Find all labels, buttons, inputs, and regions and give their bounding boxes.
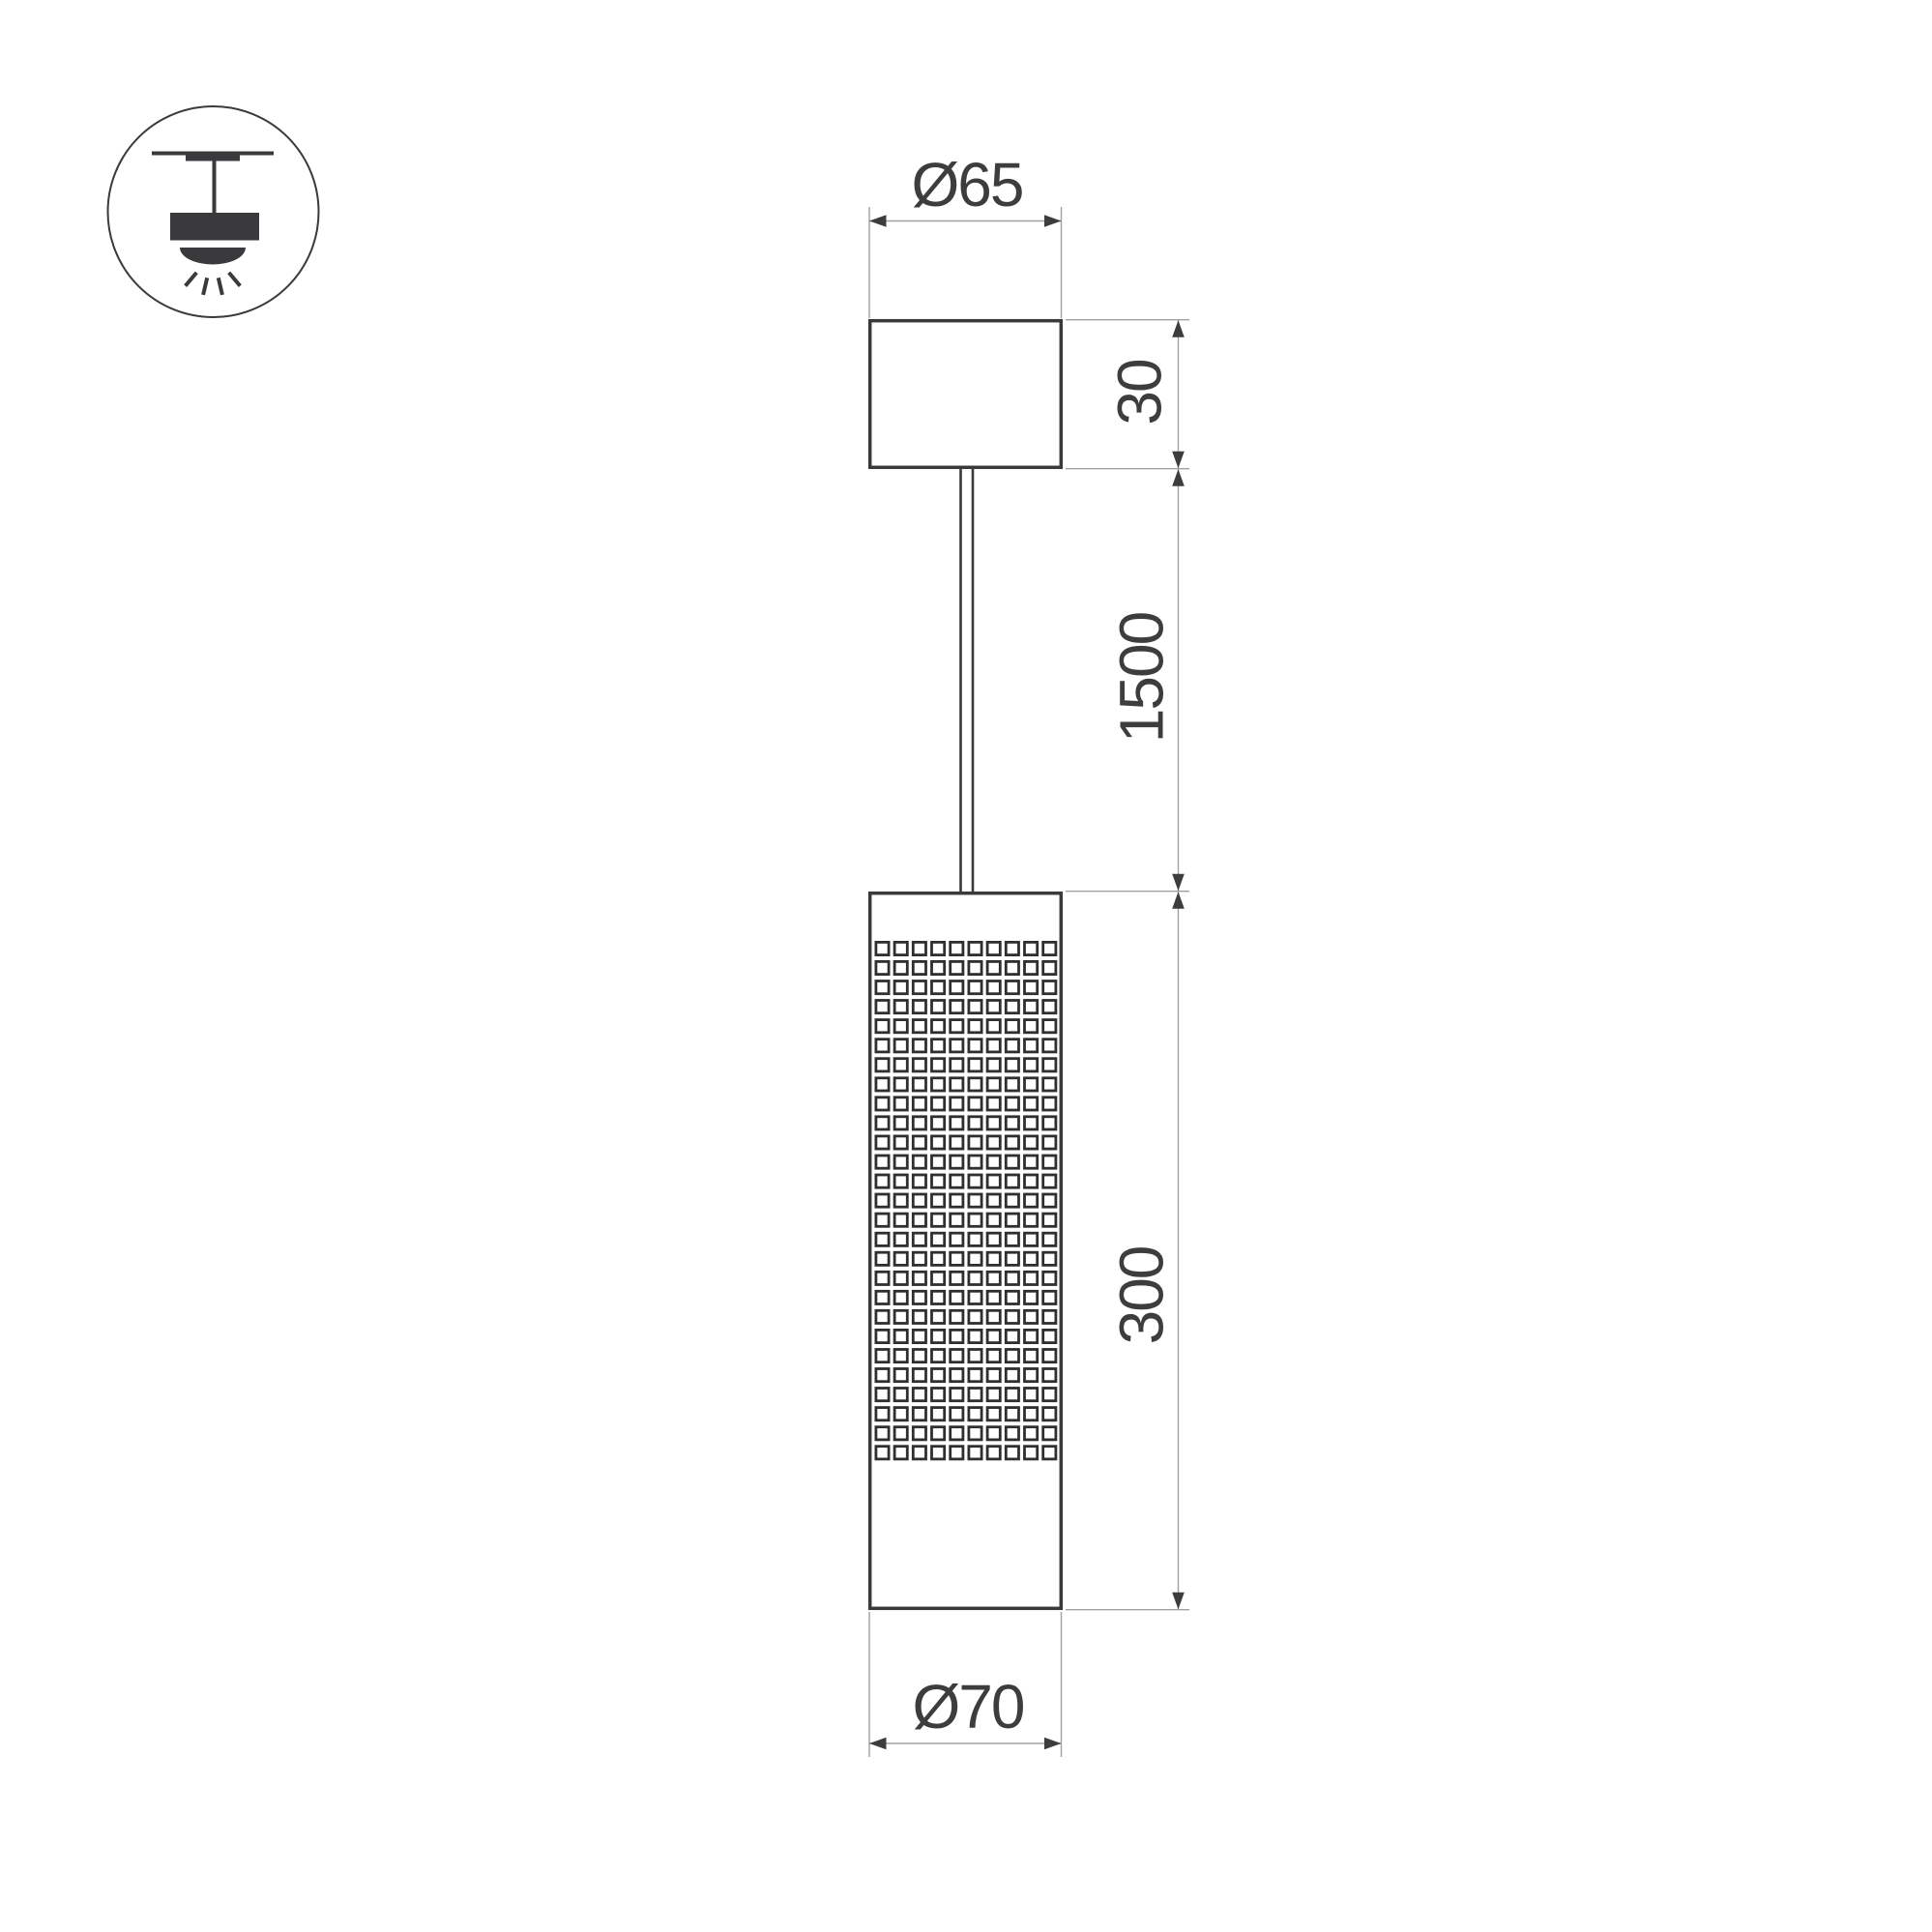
mesh-cell	[894, 1350, 907, 1362]
mesh-cell	[1006, 1330, 1018, 1342]
mesh-cell	[894, 942, 907, 954]
mesh-cell	[951, 1233, 963, 1245]
mesh-cell	[876, 1001, 889, 1013]
mesh-cell	[1025, 1214, 1038, 1226]
mesh-cell	[894, 1291, 907, 1303]
mesh-cell	[932, 981, 945, 994]
mesh-cell	[1025, 1194, 1038, 1207]
mesh-cell	[987, 1156, 1000, 1168]
mesh-cell	[969, 1389, 981, 1401]
mesh-cell	[1043, 1389, 1056, 1401]
mesh-cell	[932, 1272, 945, 1284]
mesh-cell	[1006, 1001, 1018, 1013]
mesh-cell	[951, 1039, 963, 1052]
mesh-cell	[876, 1310, 889, 1323]
mesh-cell	[969, 1310, 981, 1323]
mesh-cell	[951, 1272, 963, 1284]
pendant-fixture	[870, 321, 1062, 1609]
mesh-cell	[951, 1369, 963, 1382]
mesh-cell	[932, 942, 945, 954]
mesh-cell	[932, 1369, 945, 1382]
mesh-cell	[1006, 942, 1018, 954]
mesh-cell	[987, 1136, 1000, 1149]
mesh-cell	[932, 1117, 945, 1129]
mesh-cell	[1025, 1117, 1038, 1129]
mesh-cell	[1043, 1194, 1056, 1207]
mesh-cell	[969, 1330, 981, 1342]
mesh-cell	[1043, 961, 1056, 974]
mesh-cell	[913, 1447, 925, 1459]
mesh-cell	[1025, 1291, 1038, 1303]
mesh-cell	[1025, 1350, 1038, 1362]
canopy-outline	[870, 321, 1062, 468]
mesh-cell	[932, 1310, 945, 1323]
mesh-cell	[1006, 1389, 1018, 1401]
arrow-up-icon	[1172, 892, 1185, 909]
mesh-cell	[987, 1175, 1000, 1187]
mesh-cell	[913, 1272, 925, 1284]
mesh-cell	[894, 1059, 907, 1071]
mesh-cell	[951, 1059, 963, 1071]
mesh-cell	[951, 942, 963, 954]
mesh-cell	[894, 1330, 907, 1342]
mesh-cell	[987, 1194, 1000, 1207]
mesh-cell	[876, 1330, 889, 1342]
mesh-cell	[1025, 1039, 1038, 1052]
mesh-cell	[969, 1233, 981, 1245]
mesh-cell	[932, 1389, 945, 1401]
mesh-cell	[913, 1330, 925, 1342]
mesh-cell	[969, 981, 981, 994]
mesh-cell	[969, 1369, 981, 1382]
dim-label-body-height: 300	[1106, 1246, 1176, 1344]
mesh-cell	[894, 1408, 907, 1420]
mesh-cell	[1006, 1427, 1018, 1440]
mesh-cell	[987, 1098, 1000, 1110]
mesh-cell	[913, 1214, 925, 1226]
arrow-up-icon	[1172, 469, 1185, 486]
mesh-cell	[876, 1098, 889, 1110]
mesh-cell	[987, 1039, 1000, 1052]
mesh-cell	[951, 1447, 963, 1459]
mesh-cell	[1006, 1136, 1018, 1149]
mesh-cell	[876, 1214, 889, 1226]
mesh-cell	[987, 1427, 1000, 1440]
mesh-cell	[969, 1020, 981, 1033]
mesh-cell	[932, 1214, 945, 1226]
mesh-cell	[1025, 1020, 1038, 1033]
mesh-cell	[951, 1389, 963, 1401]
mesh-cell	[951, 1136, 963, 1149]
mesh-cell	[1025, 1001, 1038, 1013]
mesh-cell	[969, 1156, 981, 1168]
mesh-cell	[951, 1098, 963, 1110]
mesh-cell	[1006, 1447, 1018, 1459]
mesh-cell	[1043, 1059, 1056, 1071]
mesh-cell	[969, 1291, 981, 1303]
mesh-cell	[894, 1136, 907, 1149]
mesh-cell	[969, 1427, 981, 1440]
mesh-cell	[932, 961, 945, 974]
mesh-cell	[932, 1233, 945, 1245]
mesh-cell	[913, 1233, 925, 1245]
mesh-cell	[913, 1252, 925, 1265]
lamp-body-icon	[170, 213, 259, 241]
drawing-canvas: Ø65 30 1500 300 Ø70	[0, 0, 1932, 1932]
mesh-cell	[913, 1001, 925, 1013]
mesh-cell	[932, 1194, 945, 1207]
mesh-cell	[932, 1001, 945, 1013]
mesh-cell	[1006, 1039, 1018, 1052]
mesh-cell	[969, 1272, 981, 1284]
mesh-cell	[1006, 1098, 1018, 1110]
mesh-cell	[1006, 1350, 1018, 1362]
mesh-cell	[913, 1350, 925, 1362]
mesh-cell	[1006, 1291, 1018, 1303]
mesh-cell	[913, 961, 925, 974]
mesh-cell	[913, 1098, 925, 1110]
mesh-cell	[951, 1156, 963, 1168]
dim-chain-right: 30 1500 300	[1066, 320, 1189, 1610]
mesh-cell	[876, 1059, 889, 1071]
mesh-cell	[951, 1078, 963, 1091]
mesh-cell	[987, 1291, 1000, 1303]
mesh-cell	[932, 1156, 945, 1168]
mesh-cell	[969, 1059, 981, 1071]
dim-label-bottom-diameter: Ø70	[913, 1672, 1024, 1742]
mesh-cell	[894, 1001, 907, 1013]
mesh-cell	[969, 1175, 981, 1187]
mesh-cell	[876, 1291, 889, 1303]
mesh-cell	[987, 961, 1000, 974]
mesh-cell	[1025, 961, 1038, 974]
mesh-cell	[876, 1194, 889, 1207]
mesh-cell	[894, 1194, 907, 1207]
mesh-cell	[894, 1078, 907, 1091]
mesh-cell	[969, 1214, 981, 1226]
mesh-cell	[913, 1117, 925, 1129]
mesh-cell	[1025, 1272, 1038, 1284]
arrow-up-icon	[1172, 320, 1185, 337]
mesh-cell	[951, 1194, 963, 1207]
mesh-cell	[969, 1194, 981, 1207]
mesh-cell	[876, 1039, 889, 1052]
mesh-cell	[876, 1389, 889, 1401]
mesh-cell	[1043, 1310, 1056, 1323]
dim-top-diameter: Ø65	[869, 150, 1062, 318]
mesh-cell	[1025, 1427, 1038, 1440]
mesh-cell	[913, 942, 925, 954]
mesh-cell	[987, 981, 1000, 994]
mesh-cell	[951, 1427, 963, 1440]
mesh-cell	[969, 1117, 981, 1129]
mesh-cell	[1025, 1389, 1038, 1401]
mesh-cell	[969, 1408, 981, 1420]
mesh-cell	[894, 961, 907, 974]
mesh-cell	[876, 961, 889, 974]
mesh-cell	[1025, 942, 1038, 954]
mesh-cell	[1025, 981, 1038, 994]
mesh-cell	[951, 1252, 963, 1265]
mesh-cell	[1025, 1175, 1038, 1187]
mesh-cell	[1006, 1233, 1018, 1245]
mesh-cell	[1025, 1408, 1038, 1420]
mesh-cell	[876, 1175, 889, 1187]
mesh-cell	[1043, 1136, 1056, 1149]
mesh-cell	[1006, 1059, 1018, 1071]
mesh-cell	[1025, 1136, 1038, 1149]
mesh-cell	[894, 1389, 907, 1401]
mesh-cell	[1043, 1098, 1056, 1110]
mesh-cell	[913, 1291, 925, 1303]
mesh-cell	[1025, 1310, 1038, 1323]
mesh-cell	[932, 1039, 945, 1052]
arrow-down-icon	[1172, 1593, 1185, 1610]
mesh-cell	[987, 1078, 1000, 1091]
mesh-cell	[1043, 1330, 1056, 1342]
mesh-cell	[1006, 1272, 1018, 1284]
mesh-cell	[1043, 1175, 1056, 1187]
mesh-cell	[987, 1059, 1000, 1071]
mesh-cell	[987, 942, 1000, 954]
mesh-cell	[951, 961, 963, 974]
mesh-cell	[894, 1272, 907, 1284]
mesh-cell	[913, 1156, 925, 1168]
mesh-cell	[1043, 981, 1056, 994]
mesh-cell	[1006, 1156, 1018, 1168]
mesh-cell	[951, 1310, 963, 1323]
mesh-cell	[969, 1098, 981, 1110]
mesh-cell	[1006, 1408, 1018, 1420]
mesh-cell	[913, 1059, 925, 1071]
mesh-cell	[876, 1156, 889, 1168]
pendant-technical-drawing: Ø65 30 1500 300 Ø70	[0, 0, 1932, 1932]
mesh-cell	[1006, 1117, 1018, 1129]
mesh-cell	[951, 1001, 963, 1013]
mesh-cell	[894, 1233, 907, 1245]
mesh-cell	[1043, 1369, 1056, 1382]
arrow-down-icon	[1172, 452, 1185, 469]
mesh-cell	[894, 1156, 907, 1168]
mesh-cell	[987, 1001, 1000, 1013]
mesh-cell	[876, 1427, 889, 1440]
mesh-cell	[876, 981, 889, 994]
mesh-cell	[876, 1369, 889, 1382]
mesh-cell	[894, 1020, 907, 1033]
mesh-cell	[1006, 1369, 1018, 1382]
dim-bottom-diameter: Ø70	[869, 1612, 1062, 1757]
dim-label-canopy-height: 30	[1104, 360, 1174, 425]
mesh-cell	[913, 1175, 925, 1187]
mesh-cell	[894, 1369, 907, 1382]
mesh-cell	[913, 1310, 925, 1323]
mesh-cell	[1025, 1369, 1038, 1382]
mesh-cell	[969, 1136, 981, 1149]
mesh-cell	[1043, 1427, 1056, 1440]
mesh-cell	[1025, 1252, 1038, 1265]
mesh-cell	[932, 1175, 945, 1187]
mesh-cell	[951, 981, 963, 994]
mesh-cell	[1025, 1330, 1038, 1342]
mesh-cell	[932, 1059, 945, 1071]
mesh-cell	[894, 1427, 907, 1440]
mesh-cell	[969, 1252, 981, 1265]
mesh-cell	[951, 1175, 963, 1187]
mesh-cell	[1006, 981, 1018, 994]
mesh-cell	[913, 1194, 925, 1207]
mesh-cell	[932, 1098, 945, 1110]
mesh-cell	[1043, 1272, 1056, 1284]
mesh-cell	[951, 1020, 963, 1033]
mesh-cell	[894, 981, 907, 994]
mesh-cell	[913, 1369, 925, 1382]
mesh-cell	[932, 1408, 945, 1420]
mesh-cell	[1025, 1098, 1038, 1110]
mesh-cell	[969, 942, 981, 954]
mesh-cell	[913, 981, 925, 994]
mesh-cell	[876, 1447, 889, 1459]
mesh-cell	[932, 1078, 945, 1091]
mesh-cell	[1006, 1078, 1018, 1091]
mesh-cell	[987, 1020, 1000, 1033]
mesh-cell	[969, 1001, 981, 1013]
mesh-cell	[876, 942, 889, 954]
mesh-cell	[1043, 1078, 1056, 1091]
mesh-cell	[876, 1117, 889, 1129]
mesh-cell	[894, 1252, 907, 1265]
mesh-cell	[894, 1214, 907, 1226]
mesh-cell	[987, 1350, 1000, 1362]
mesh-cell	[951, 1330, 963, 1342]
mesh-cell	[913, 1039, 925, 1052]
mesh-cell	[1006, 1252, 1018, 1265]
mesh-cell	[951, 1408, 963, 1420]
mesh-cell	[969, 1039, 981, 1052]
mesh-cell	[1043, 1350, 1056, 1362]
mesh-cell	[1025, 1156, 1038, 1168]
mesh-cell	[969, 1078, 981, 1091]
mesh-cell	[913, 1408, 925, 1420]
arrow-left-icon	[869, 215, 887, 226]
arrow-right-icon	[1044, 1738, 1062, 1749]
mesh-cell	[987, 1447, 1000, 1459]
mesh-cell	[987, 1310, 1000, 1323]
mesh-cell	[894, 1039, 907, 1052]
mesh-cell	[1043, 1291, 1056, 1303]
mesh-cell	[913, 1136, 925, 1149]
mesh-cell	[1043, 1001, 1056, 1013]
mesh-cell	[876, 1350, 889, 1362]
mesh-cell	[1006, 1310, 1018, 1323]
mesh-cell	[987, 1369, 1000, 1382]
mesh-cell	[932, 1291, 945, 1303]
mesh-cell	[951, 1117, 963, 1129]
mesh-cell	[913, 1020, 925, 1033]
mesh-cell	[1043, 1020, 1056, 1033]
mesh-cell	[1043, 1233, 1056, 1245]
mesh-cell	[1006, 961, 1018, 974]
mesh-cell	[932, 1330, 945, 1342]
mesh-cell	[1043, 1156, 1056, 1168]
mesh-cell	[876, 1020, 889, 1033]
mesh-cell	[932, 1427, 945, 1440]
mesh-cell	[913, 1427, 925, 1440]
mesh-cell	[894, 1447, 907, 1459]
mesh-cell	[876, 1078, 889, 1091]
mesh-cell	[987, 1389, 1000, 1401]
arrow-right-icon	[1044, 215, 1062, 226]
mesh-cell	[876, 1136, 889, 1149]
lamp-dome-icon	[180, 248, 246, 265]
mesh-cell	[969, 1447, 981, 1459]
mesh-cell	[987, 1214, 1000, 1226]
light-rays-icon	[186, 273, 241, 295]
mesh-cell	[969, 961, 981, 974]
mesh-cell	[876, 1252, 889, 1265]
mesh-cell	[894, 1117, 907, 1129]
mesh-cell	[1006, 1214, 1018, 1226]
mesh-cell	[932, 1020, 945, 1033]
mesh-cell	[1006, 1175, 1018, 1187]
mesh-cell	[969, 1350, 981, 1362]
arrow-left-icon	[869, 1738, 887, 1749]
mesh-cell	[987, 1233, 1000, 1245]
mesh-cell	[932, 1350, 945, 1362]
mesh-cell	[876, 1272, 889, 1284]
mesh-cell	[894, 1098, 907, 1110]
mesh-cell	[987, 1252, 1000, 1265]
pendant-mount-icon	[108, 106, 319, 317]
mesh-cell	[987, 1408, 1000, 1420]
mesh-cell	[1043, 1117, 1056, 1129]
mesh-cell	[987, 1117, 1000, 1129]
mesh-cell	[1006, 1194, 1018, 1207]
mesh-cell	[932, 1447, 945, 1459]
mesh-cell	[1025, 1447, 1038, 1459]
mesh-cell	[951, 1214, 963, 1226]
mesh-cell	[951, 1350, 963, 1362]
mesh-cell	[876, 1233, 889, 1245]
mesh-cell	[1043, 1408, 1056, 1420]
mesh-cell	[913, 1078, 925, 1091]
mesh-cell	[1025, 1059, 1038, 1071]
mesh-cell	[1025, 1233, 1038, 1245]
dim-label-suspension-length: 1500	[1106, 612, 1176, 743]
mesh-cell	[1043, 1447, 1056, 1459]
dim-label-top-diameter: Ø65	[912, 150, 1023, 220]
mesh-cell	[876, 1408, 889, 1420]
mesh-cell	[987, 1330, 1000, 1342]
mesh-cell	[1043, 1039, 1056, 1052]
mesh-cell	[894, 1175, 907, 1187]
mesh-cell	[1043, 1252, 1056, 1265]
mesh-cell	[1006, 1020, 1018, 1033]
mesh-cell	[932, 1136, 945, 1149]
mesh-cell	[913, 1389, 925, 1401]
mesh-cell	[987, 1272, 1000, 1284]
mesh-cell	[932, 1252, 945, 1265]
mesh-cell	[1025, 1078, 1038, 1091]
mesh-cell	[951, 1291, 963, 1303]
mesh-cell	[1043, 1214, 1056, 1226]
mesh-cell	[1043, 942, 1056, 954]
arrow-down-icon	[1172, 874, 1185, 892]
mesh-cell	[894, 1310, 907, 1323]
